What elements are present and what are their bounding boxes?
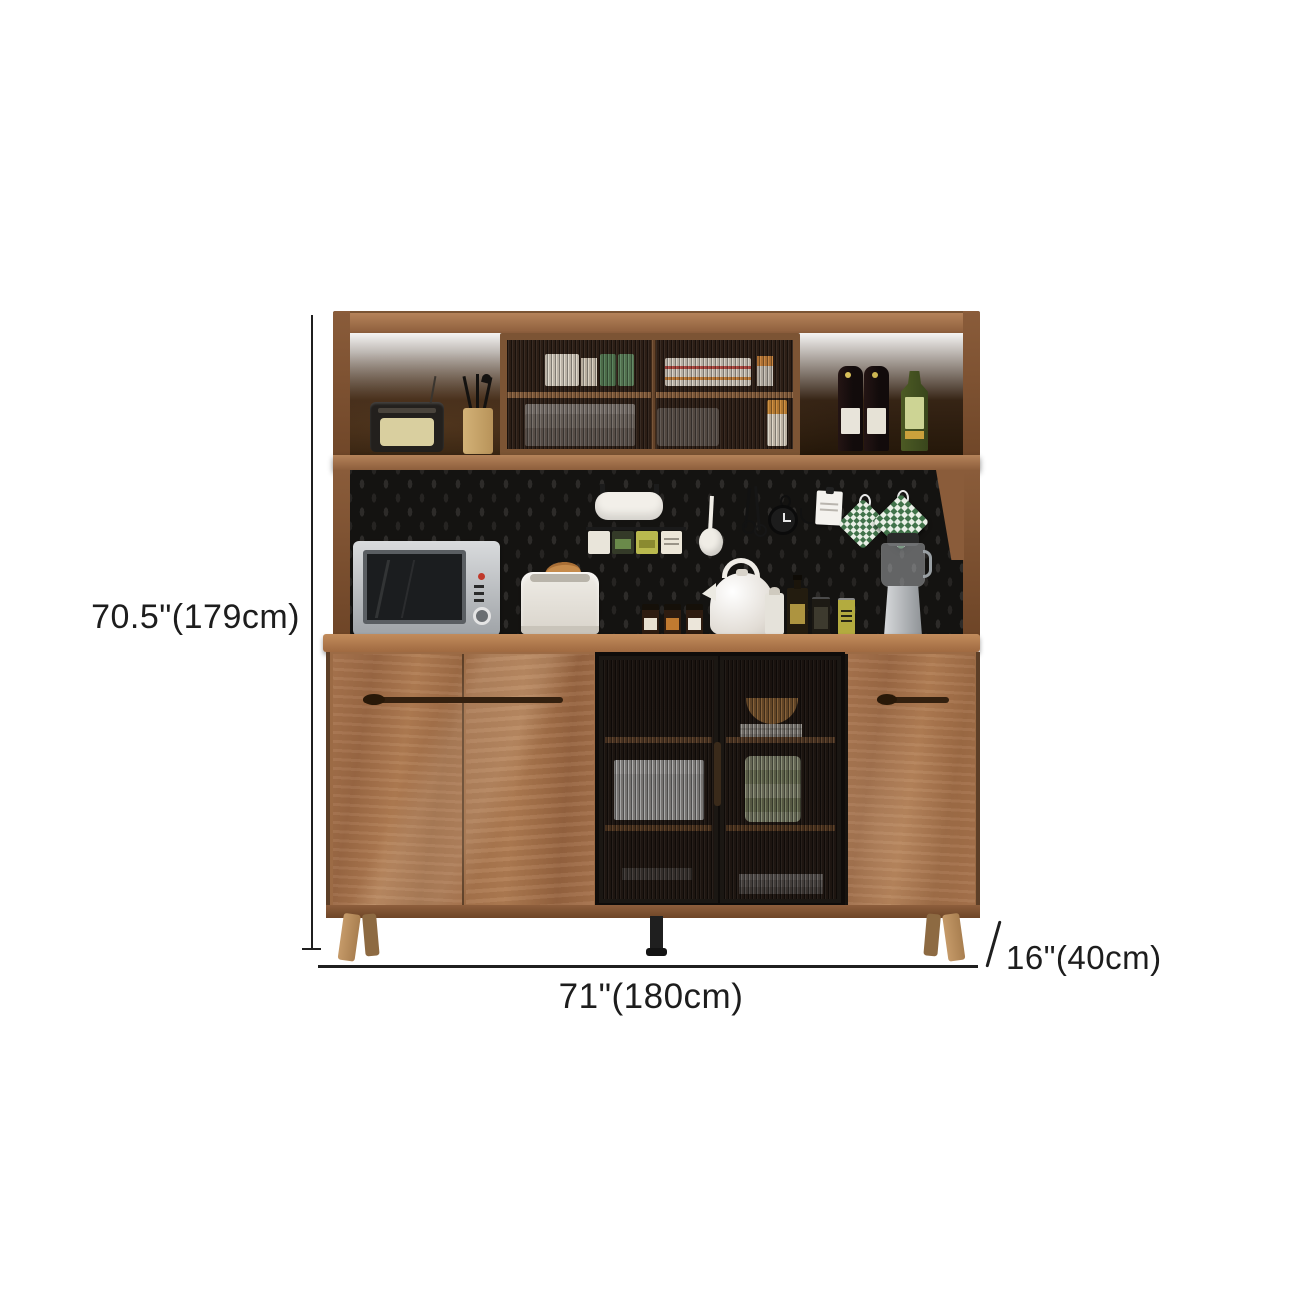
timer-clock bbox=[768, 505, 798, 535]
width-dimension-line bbox=[318, 965, 978, 968]
microwave bbox=[353, 541, 500, 636]
stored-plates bbox=[740, 724, 802, 737]
display-can-green-1 bbox=[600, 354, 616, 386]
ladle-bowl bbox=[699, 528, 723, 556]
hutch-top-board bbox=[333, 311, 980, 333]
side-panel-left bbox=[333, 470, 350, 637]
spice-rail bbox=[586, 527, 686, 530]
countertop bbox=[323, 634, 980, 652]
utensil-holder bbox=[463, 408, 493, 454]
paper-towel-roll bbox=[595, 492, 663, 520]
height-dimension-line bbox=[311, 315, 313, 950]
radio bbox=[370, 402, 444, 452]
display-box-white bbox=[545, 354, 579, 386]
display-shelf bbox=[507, 392, 793, 398]
display-jar bbox=[767, 400, 787, 446]
microwave-door bbox=[363, 550, 466, 624]
spice-bottle bbox=[642, 604, 659, 635]
glass-door-left bbox=[599, 656, 718, 903]
display-door-divider bbox=[651, 340, 656, 449]
blender-handle bbox=[923, 550, 932, 578]
display-can-orange bbox=[757, 356, 773, 386]
stored-green-bowls bbox=[745, 756, 801, 822]
door-handle-notch-left bbox=[363, 694, 385, 705]
utensil-holder-utensils bbox=[458, 374, 500, 412]
microwave-dial bbox=[473, 607, 491, 625]
stored-glass-plates bbox=[739, 874, 823, 894]
glass-door-handle bbox=[714, 742, 721, 806]
memo-pad bbox=[815, 490, 843, 525]
beverage-can bbox=[838, 598, 855, 635]
width-dimension-label: 71"(180cm) bbox=[486, 976, 816, 1018]
stored-container bbox=[614, 760, 704, 820]
cabinet-leg bbox=[942, 913, 965, 962]
blender-jar bbox=[881, 543, 925, 587]
height-dimension-tick bbox=[302, 948, 321, 950]
toaster bbox=[521, 572, 599, 634]
radio-top-grille bbox=[378, 408, 436, 413]
depth-dimension-label: 16"(40cm) bbox=[1006, 938, 1206, 978]
spice-bottle bbox=[664, 604, 681, 635]
stored-glassware bbox=[622, 868, 692, 880]
door-handle-groove-left bbox=[363, 697, 563, 703]
hutch-right-panel bbox=[963, 311, 980, 470]
microwave-panel bbox=[471, 549, 495, 629]
display-glasses bbox=[657, 408, 719, 446]
center-support-foot bbox=[646, 948, 667, 956]
height-dimension-label: 70.5"(179cm) bbox=[86, 597, 300, 637]
cabinet-door-right bbox=[845, 654, 975, 905]
stored-bowl bbox=[746, 698, 798, 724]
wine-bottle bbox=[838, 366, 863, 451]
cabinet-door-left-2 bbox=[466, 654, 594, 905]
wine-bottle bbox=[864, 366, 889, 451]
spice-bottle bbox=[686, 604, 703, 635]
blender-base bbox=[884, 586, 922, 636]
spice-jar bbox=[636, 531, 658, 554]
kitchen-shears bbox=[742, 484, 768, 540]
door-handle-notch-right bbox=[877, 694, 897, 705]
spice-jar bbox=[661, 531, 682, 554]
cabinet-leg bbox=[338, 913, 361, 962]
glass-door-right bbox=[720, 656, 841, 903]
display-can-green-2 bbox=[618, 354, 634, 386]
beverage-can bbox=[812, 597, 830, 635]
hutch-shelf-board bbox=[333, 455, 980, 470]
spice-jar bbox=[612, 531, 634, 554]
product-photo: 70.5"(179cm) 71"(180cm) 16"(40cm) bbox=[0, 0, 1300, 1300]
hutch-left-panel bbox=[333, 311, 350, 470]
blender bbox=[878, 533, 930, 636]
spice-jar bbox=[588, 531, 610, 554]
cabinet-door-left-1 bbox=[333, 654, 464, 905]
radio-dial-face bbox=[380, 418, 434, 446]
shaker bbox=[765, 593, 784, 635]
center-support-leg bbox=[650, 916, 663, 950]
display-glass-stack bbox=[525, 404, 635, 446]
depth-dimension-slash bbox=[985, 921, 1001, 968]
glass-door-unit bbox=[595, 652, 845, 907]
cabinet-leg bbox=[362, 913, 380, 956]
side-panel-right bbox=[963, 470, 980, 637]
oil-bottle bbox=[787, 588, 808, 635]
display-cans-cream bbox=[581, 358, 597, 386]
cabinet-leg bbox=[923, 913, 941, 956]
display-stack-packets bbox=[665, 358, 751, 386]
display-case bbox=[500, 333, 800, 456]
